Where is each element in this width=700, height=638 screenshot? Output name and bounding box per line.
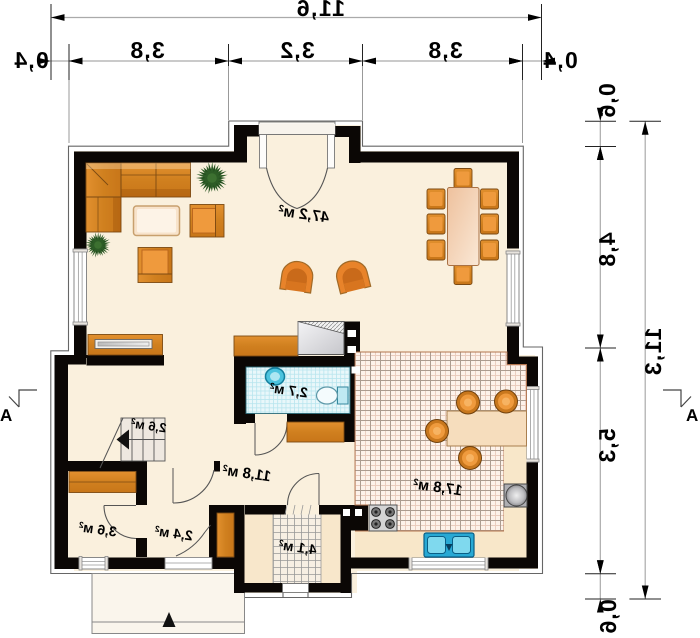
svg-text:0,4: 0,4 [542, 47, 578, 73]
svg-text:11,3: 11,3 [640, 327, 666, 376]
svg-text:5,3: 5,3 [594, 428, 620, 464]
svg-text:4,8: 4,8 [594, 232, 620, 268]
svg-text:3,2: 3,2 [279, 37, 315, 63]
svg-text:A: A [0, 406, 12, 425]
svg-text:0,4: 0,4 [13, 47, 49, 73]
svg-text:3,8: 3,8 [129, 37, 165, 63]
svg-text:0,6: 0,6 [594, 83, 620, 119]
svg-text:0,6: 0,6 [595, 599, 621, 635]
svg-text:A: A [686, 406, 698, 425]
svg-text:11,6: 11,6 [295, 0, 345, 21]
svg-text:3,8: 3,8 [427, 37, 463, 63]
